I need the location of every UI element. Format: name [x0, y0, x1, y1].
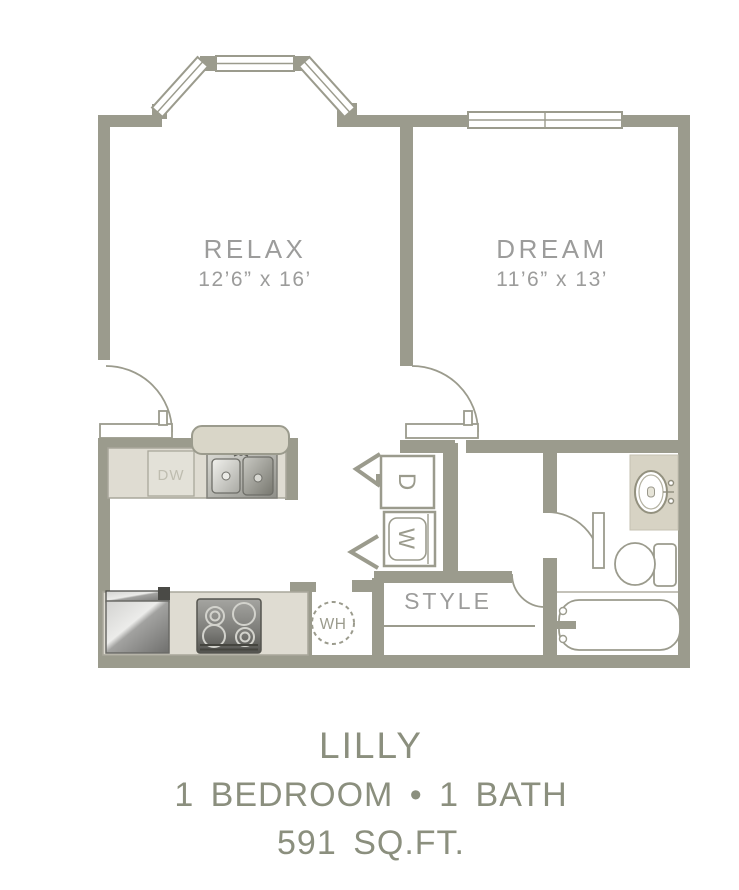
closet-label: STYLE [404, 588, 492, 614]
plan-name: LILLY [319, 725, 423, 766]
refrigerator [106, 587, 170, 653]
bathroom-vanity [630, 455, 678, 530]
water-heater-label: WH [320, 616, 347, 633]
tub-faucet-icon [557, 621, 576, 629]
living-room-dims: 12’6” x 16’ [198, 268, 311, 291]
entry-door [100, 366, 172, 438]
bedroom-dims: 11’6” x 13’ [496, 268, 608, 291]
plan-beds-baths: 1 BEDROOM • 1 BATH [174, 776, 567, 814]
stove [197, 599, 261, 653]
bathtub [557, 592, 680, 650]
washer-label: W [394, 528, 419, 550]
closet: STYLE [384, 588, 535, 626]
title-block: LILLY 1 BEDROOM • 1 BATH 591 SQ.FT. [174, 725, 567, 862]
bedroom-name: DREAM [496, 234, 607, 264]
breakfast-bar [192, 426, 289, 454]
bedroom-labels: DREAM 11’6” x 13’ [496, 234, 608, 291]
dishwasher-label: DW [158, 467, 185, 484]
floor-plan: DW [0, 0, 739, 890]
living-room-name: RELAX [204, 234, 307, 264]
plan-area: 591 SQ.FT. [277, 824, 465, 862]
bay-window [152, 56, 355, 117]
closet-door [512, 574, 545, 607]
dryer-label: D [393, 473, 420, 491]
washer: W [384, 512, 435, 566]
kitchen-sink [207, 449, 277, 498]
bedroom-window [468, 112, 622, 128]
dryer: D [381, 456, 434, 508]
floor-plan-page: DW [0, 0, 739, 890]
dishwasher: DW [148, 451, 194, 496]
bedroom-door [406, 366, 478, 438]
toilet [615, 543, 676, 586]
interior-walls [108, 115, 690, 655]
water-heater: WH [312, 602, 354, 644]
living-room-labels: RELAX 12’6” x 16’ [198, 234, 311, 291]
